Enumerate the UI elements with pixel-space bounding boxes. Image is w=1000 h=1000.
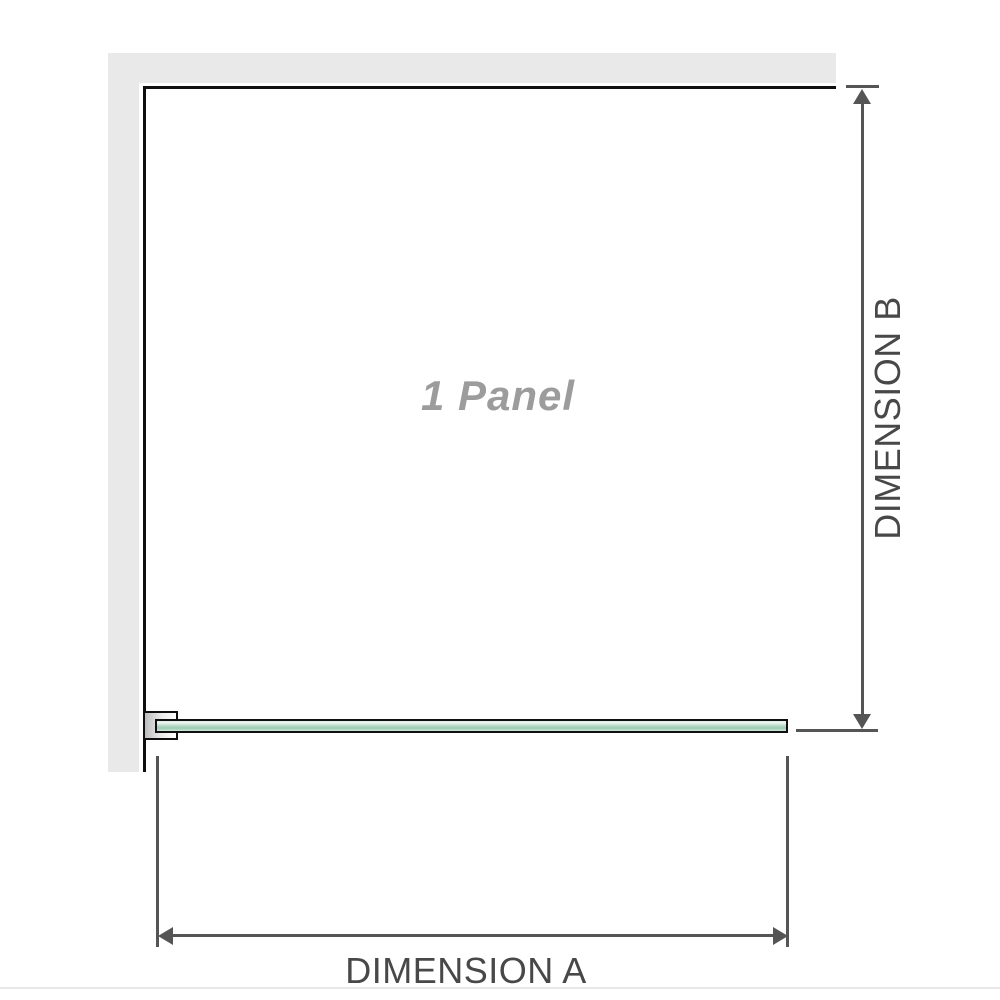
dimension-a-extension-right bbox=[786, 756, 789, 947]
dimension-b-label: DIMENSION B bbox=[870, 268, 906, 568]
dimension-a-extension-left bbox=[156, 756, 159, 947]
dimension-b-tick-top bbox=[846, 85, 879, 88]
dimension-a-label: DIMENSION A bbox=[266, 950, 666, 992]
arrow-up-icon bbox=[853, 89, 871, 104]
dimension-b-line bbox=[861, 101, 864, 714]
glass-panel bbox=[155, 719, 788, 733]
dimension-b-tick-bottom bbox=[796, 729, 878, 732]
dimension-a-line bbox=[170, 934, 775, 937]
panel-count-label: 1 Panel bbox=[348, 372, 648, 420]
arrow-left-icon bbox=[158, 927, 173, 945]
panel-outline-left bbox=[143, 86, 146, 772]
bottom-divider bbox=[0, 987, 1000, 989]
arrow-right-icon bbox=[773, 927, 788, 945]
arrow-down-icon bbox=[853, 714, 871, 729]
panel-dimension-diagram: 1 Panel DIMENSION B DIMENSION A bbox=[0, 0, 1000, 1000]
wall-top bbox=[108, 53, 836, 83]
wall-left bbox=[108, 53, 139, 772]
panel-outline-top bbox=[143, 86, 836, 89]
